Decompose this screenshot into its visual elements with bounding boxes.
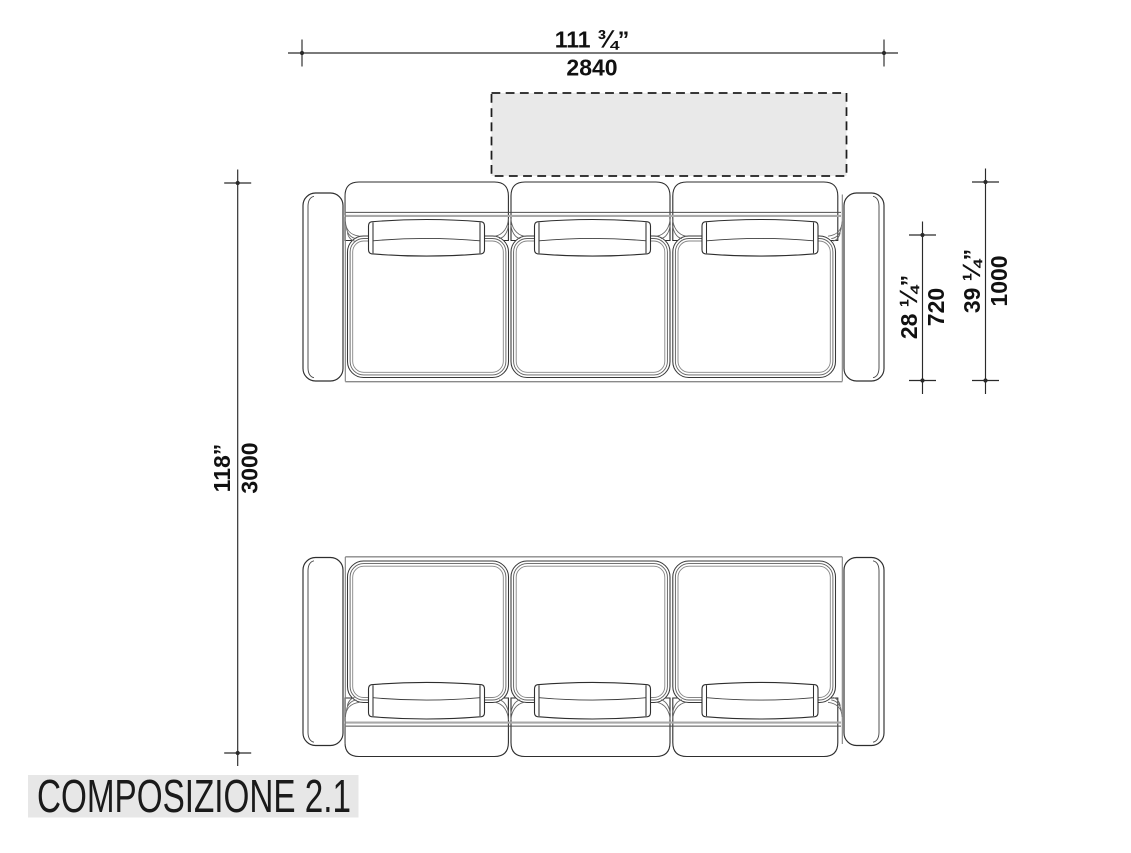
svg-text:111 ¾”: 111 ¾”: [555, 26, 630, 54]
svg-text:720: 720: [923, 288, 949, 326]
svg-text:COMPOSIZIONE 2.1: COMPOSIZIONE 2.1: [37, 770, 351, 822]
svg-text:1000: 1000: [986, 255, 1012, 306]
svg-text:28 ¼”: 28 ¼”: [895, 275, 923, 339]
svg-text:3000: 3000: [237, 442, 263, 493]
svg-text:39 ¼”: 39 ¼”: [958, 249, 986, 313]
svg-text:118”: 118”: [209, 444, 235, 493]
svg-text:2840: 2840: [566, 55, 617, 81]
